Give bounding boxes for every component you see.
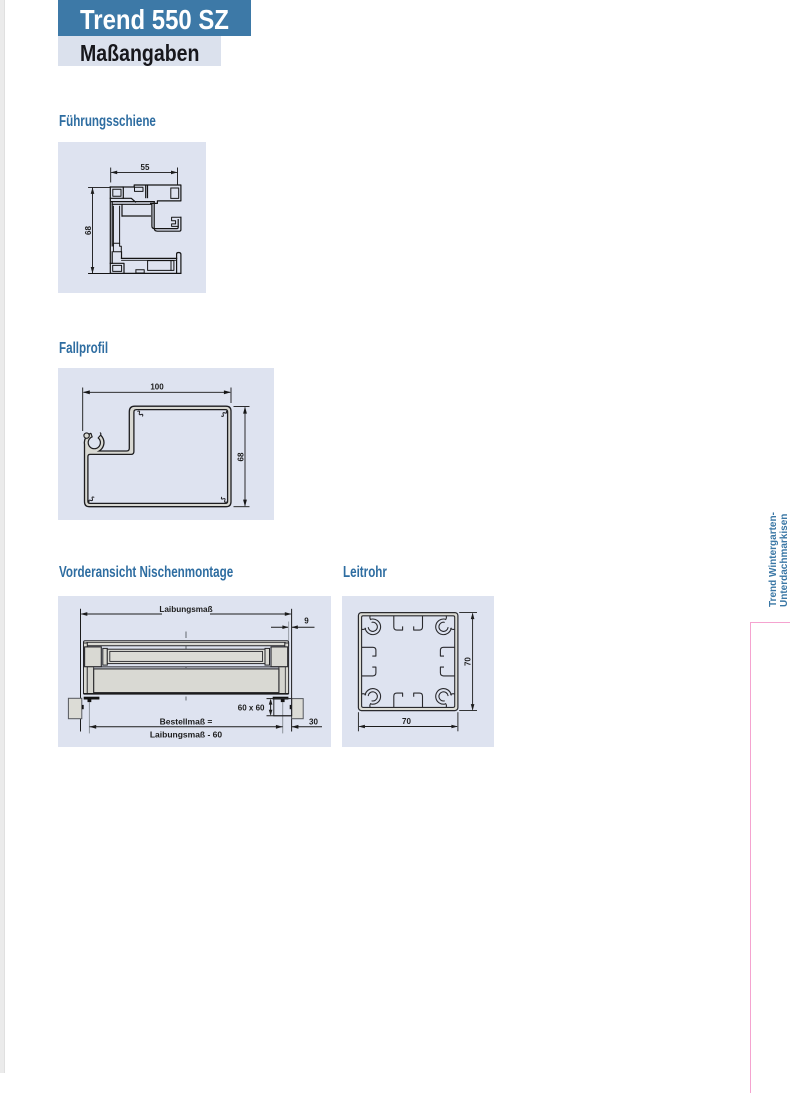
svg-text:70: 70 bbox=[463, 657, 472, 666]
svg-text:55: 55 bbox=[141, 163, 150, 172]
svg-text:68: 68 bbox=[236, 452, 245, 461]
svg-text:60 x 60: 60 x 60 bbox=[238, 704, 265, 713]
svg-text:Bestellmaß =: Bestellmaß = bbox=[160, 716, 213, 726]
svg-text:100: 100 bbox=[150, 382, 164, 391]
svg-text:Laibungsmaß - 60: Laibungsmaß - 60 bbox=[150, 730, 223, 740]
svg-text:Laibungsmaß: Laibungsmaß bbox=[159, 605, 212, 614]
svg-text:68: 68 bbox=[84, 226, 93, 235]
svg-text:9: 9 bbox=[304, 617, 309, 626]
svg-text:30: 30 bbox=[309, 717, 318, 726]
svg-text:70: 70 bbox=[402, 717, 411, 726]
